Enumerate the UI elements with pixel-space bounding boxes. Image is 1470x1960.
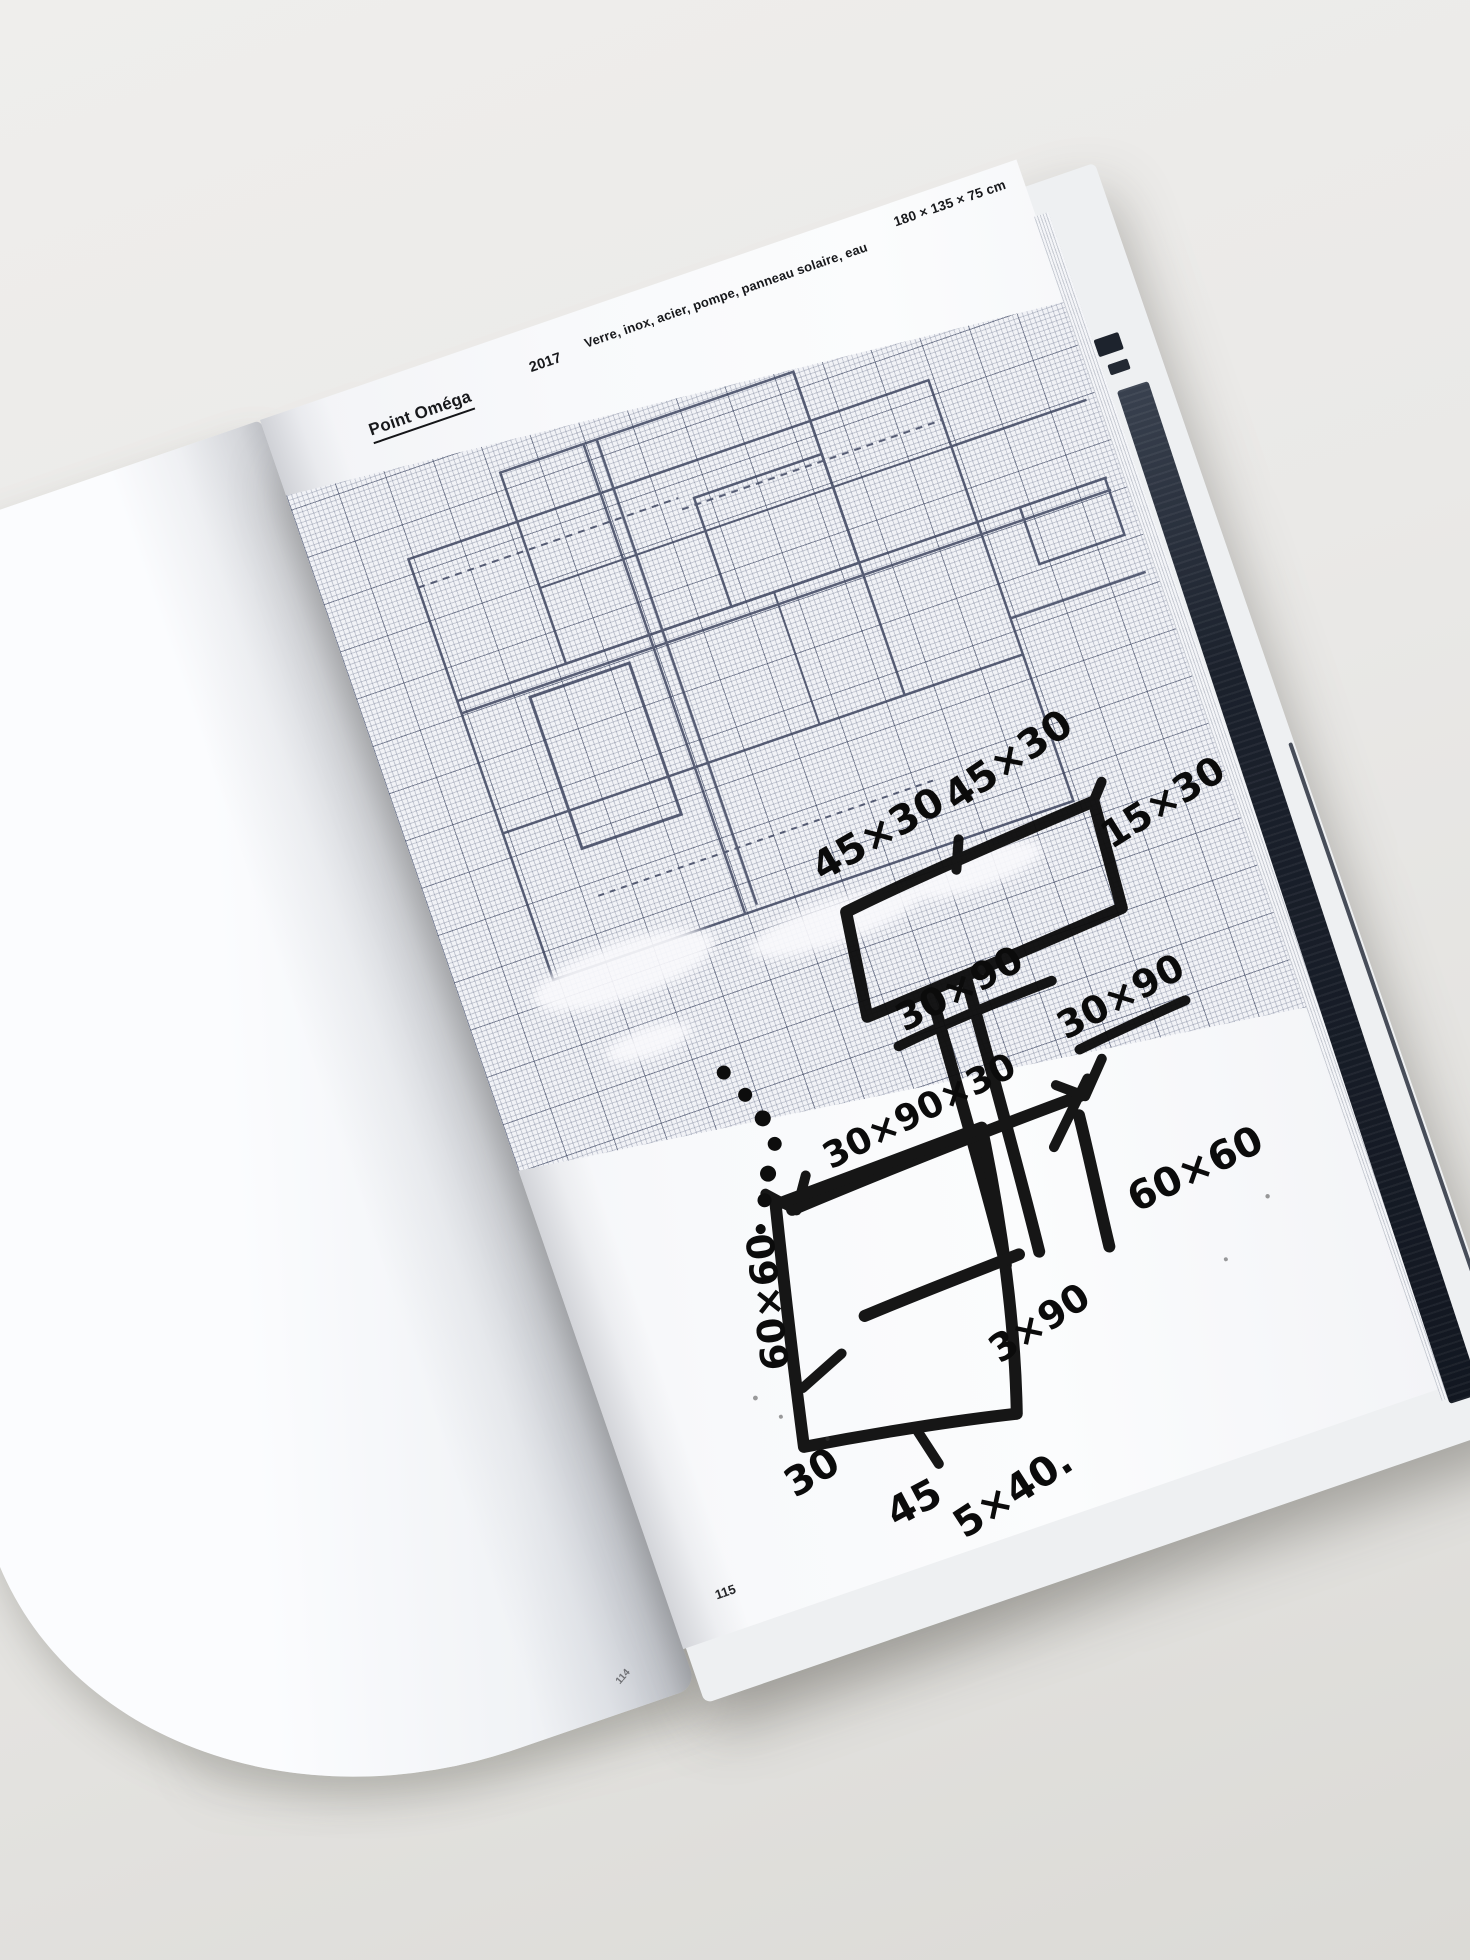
annotation-top-mid: 45×30 [935,701,1081,820]
sketch-left-tick [796,1354,848,1389]
annotation-left-vertical: 60×60 [738,1231,798,1373]
sketch-divider [862,1254,1022,1316]
annotation-bottom-left: 30 [776,1439,847,1507]
sketch-bottom-tick [916,1426,938,1467]
annotation-right-square: 60×60 [1120,1117,1270,1222]
annotation-lower-right: 3×90 [981,1274,1098,1371]
photo-of-open-book: 114 Point Oméga 2017 Verre, inox, acier,… [0,0,1470,1960]
sketch-right-bracket [1066,1115,1123,1246]
annotation-under-box-left: 30×90 [888,937,1030,1040]
annotation-top-right: 15×30 [1093,747,1233,857]
sketch-corner-hook [1088,782,1106,802]
annotation-bottom-mid: 45 [879,1470,950,1537]
